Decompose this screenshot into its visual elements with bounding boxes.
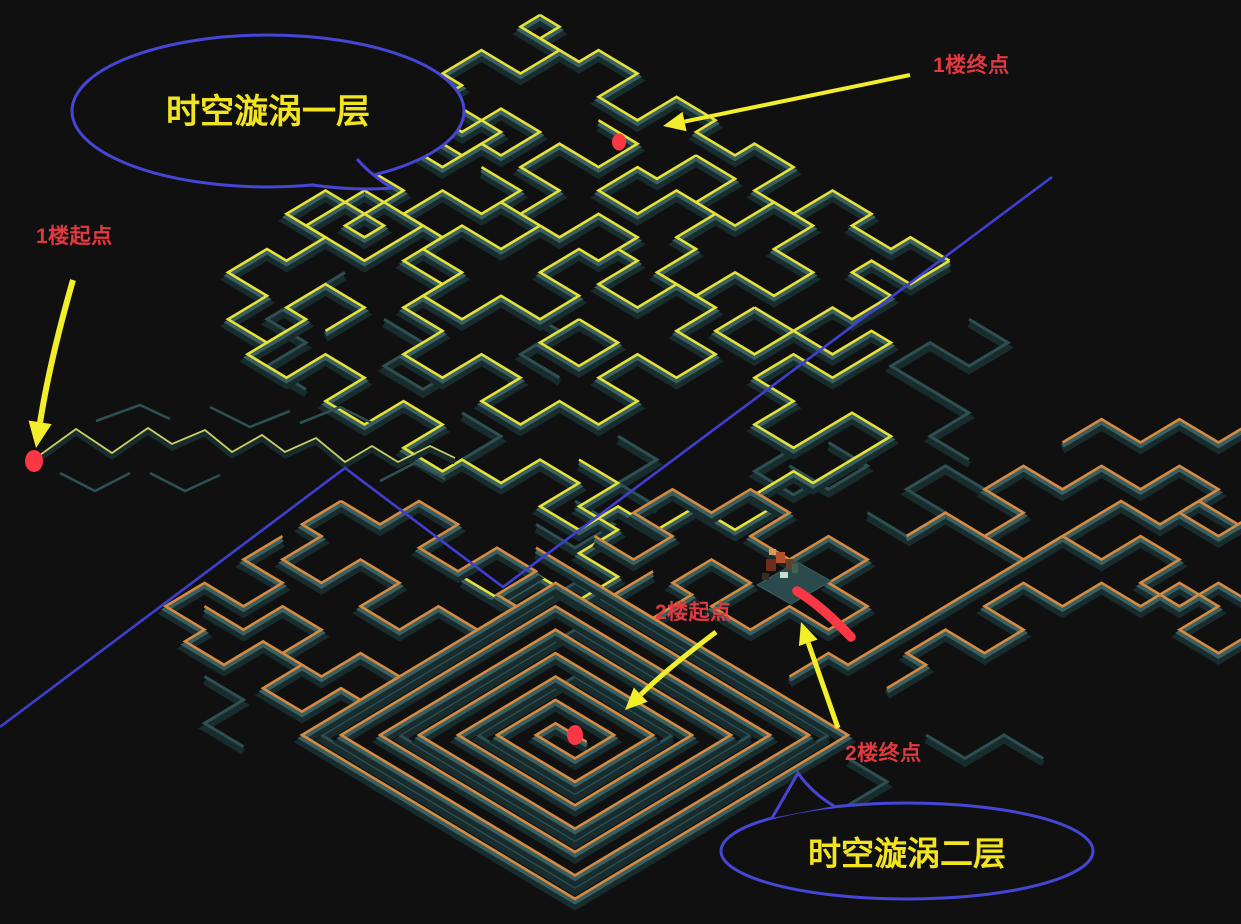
floor1-end-dot	[612, 134, 626, 151]
game-map-screenshot: 1楼起点 1楼终点 2楼起点 2楼终点 时空漩涡一层 时空漩涡二层	[0, 0, 1241, 924]
bubble-title-floor1: 时空漩涡一层	[166, 84, 370, 133]
floor1-start-dot	[25, 450, 43, 472]
arrow-floor1-start	[29, 280, 73, 448]
bubble-title-floor2: 时空漩涡二层	[808, 827, 1006, 875]
label-floor1-start: 1楼起点	[36, 220, 113, 250]
label-floor1-end: 1楼终点	[933, 49, 1010, 79]
label-floor2-end: 2楼终点	[845, 737, 922, 767]
vortex-maze-map	[0, 0, 1241, 924]
floor2-start-dot	[567, 725, 583, 745]
label-floor2-start: 2楼起点	[655, 596, 732, 626]
